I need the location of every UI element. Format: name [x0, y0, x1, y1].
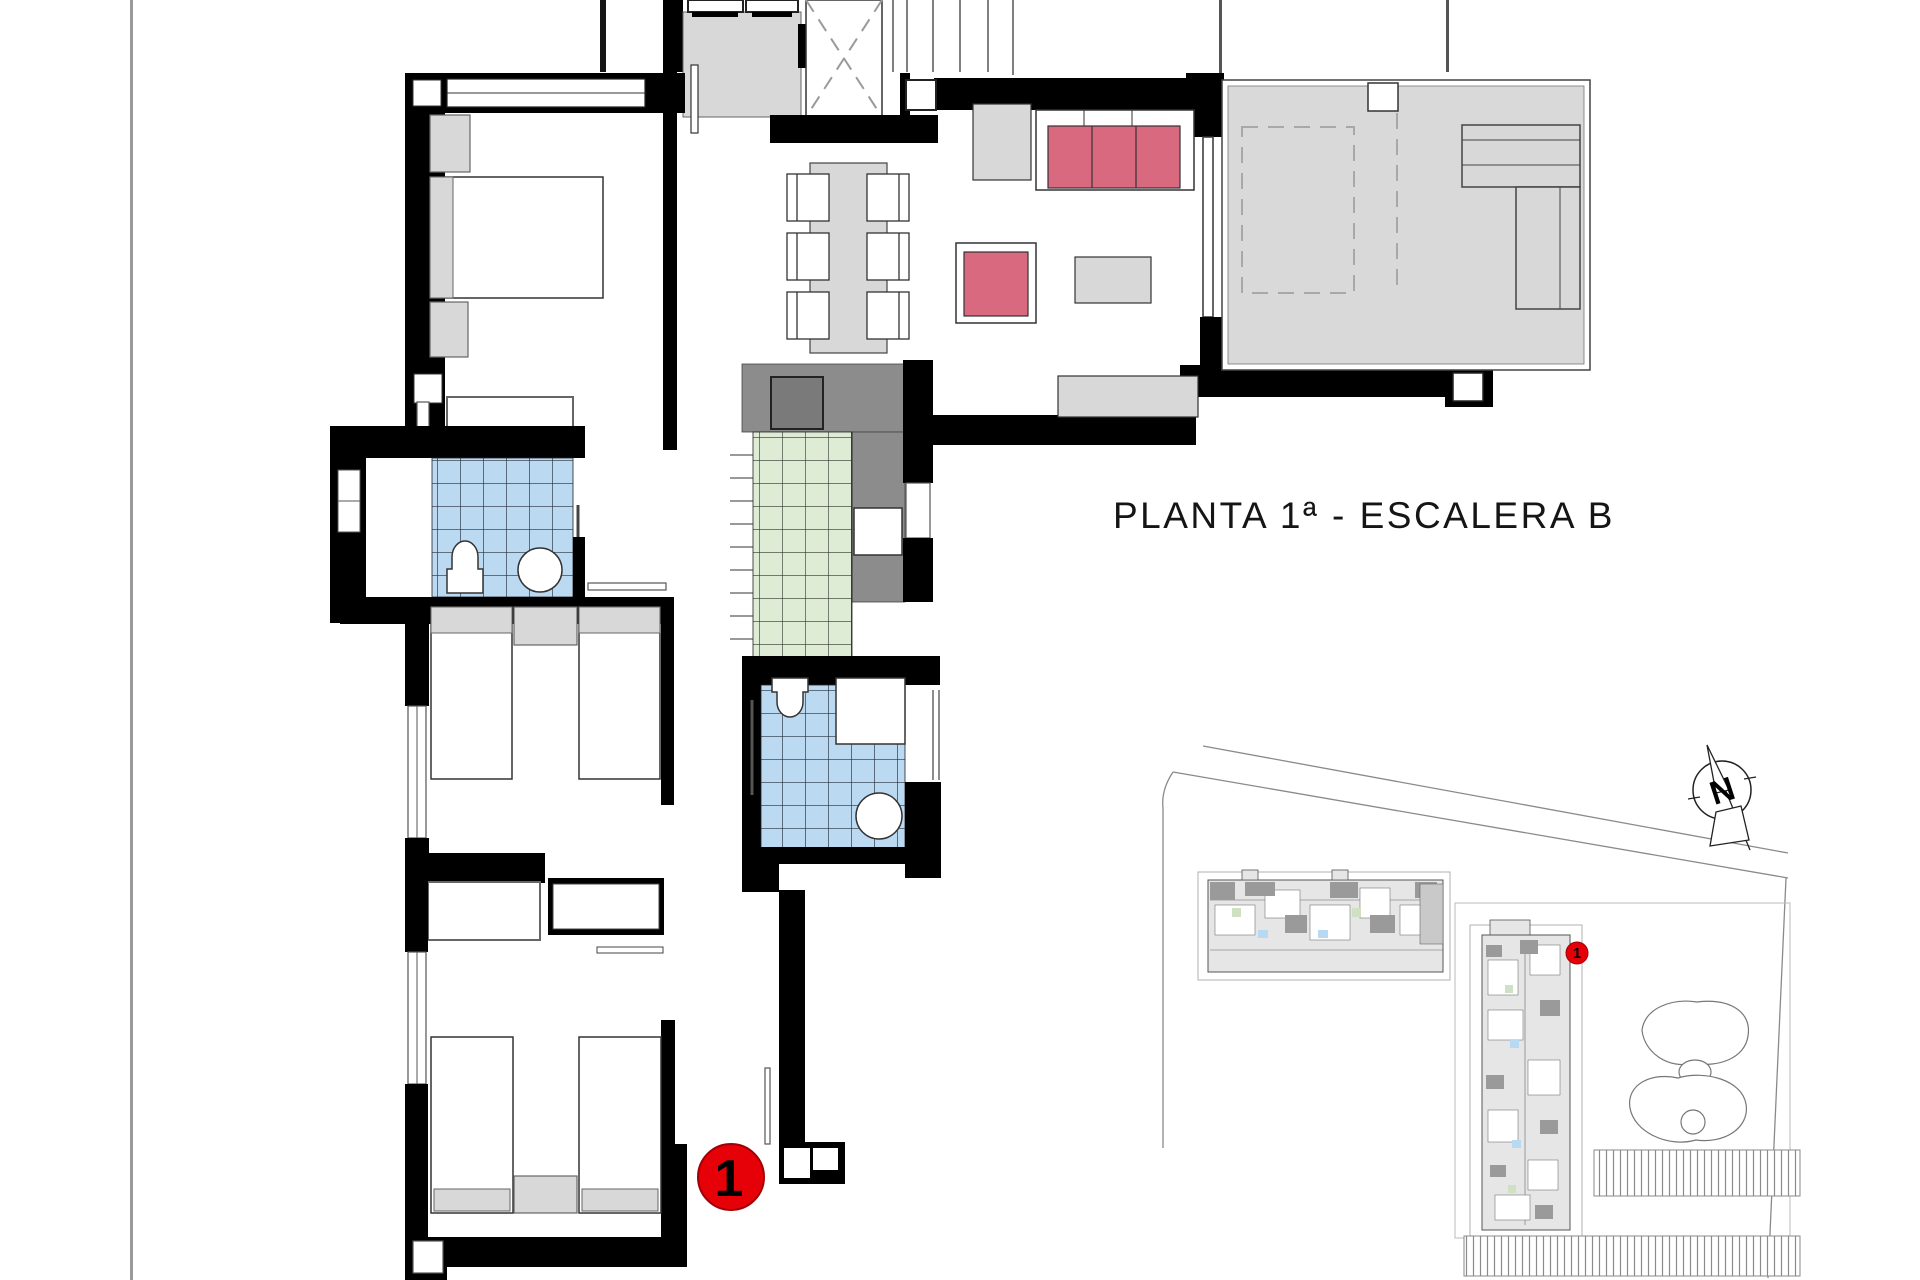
dining-set [787, 163, 909, 353]
wall [905, 782, 941, 878]
terrace-notch [1368, 83, 1398, 111]
hatched-deck [1464, 1236, 1800, 1276]
entrance-door-opening [813, 1148, 838, 1170]
kitchen-tiled-floor [753, 432, 852, 658]
living-bottom-wall [930, 415, 1196, 445]
wall [661, 1020, 675, 1144]
floor-plan-page: 1 PLANTA 1ª - ESCALERA B [0, 0, 1920, 1280]
landing-door [746, 0, 798, 12]
shower [836, 678, 905, 744]
bedroom-1 [405, 70, 685, 450]
single-bed [579, 1037, 661, 1213]
site-unit-marker: 1 [1566, 942, 1588, 964]
closet [553, 884, 659, 929]
site-plan: 1 N [1163, 745, 1800, 1278]
kitchen-sink [771, 377, 823, 429]
wall-window [1453, 373, 1483, 401]
stair-landing [683, 12, 801, 117]
plan-title: PLANTA 1ª - ESCALERA B [1113, 495, 1615, 536]
stairwell-block [663, 0, 1013, 143]
unit-marker-label: 1 [715, 1150, 744, 1208]
shelf [597, 947, 663, 953]
wall-stub [573, 537, 585, 597]
nightstand [430, 302, 468, 357]
washbasin [518, 548, 562, 592]
coffee-table [1075, 257, 1151, 303]
sideboard [973, 104, 1031, 180]
appliance [854, 508, 902, 555]
balcony-divider-line [600, 0, 606, 72]
bottom-wall [405, 1237, 686, 1267]
living-top-wall [934, 78, 1186, 110]
pool-island [1681, 1110, 1705, 1134]
corridor-wall [779, 890, 805, 1150]
wardrobe [428, 882, 540, 940]
bathroom-2 [742, 656, 941, 878]
hatched-deck [1594, 1150, 1800, 1196]
door-leaf [765, 1068, 770, 1144]
door-threshold [752, 12, 792, 17]
page-border-left [130, 0, 133, 1280]
wall-niche [906, 80, 936, 110]
wall [742, 862, 779, 892]
entry-door-leaf [691, 65, 698, 133]
entrance-door-opening [784, 1148, 810, 1178]
washbasin [856, 793, 902, 839]
nightstand [430, 115, 470, 172]
hall-wall [770, 115, 938, 143]
site-unit-marker-label: 1 [1573, 945, 1581, 962]
bathroom1-top-wall [330, 426, 585, 458]
kitchen-right-wall [903, 538, 933, 602]
window [413, 1241, 443, 1273]
bedroom-2 [405, 600, 674, 888]
wall [405, 880, 428, 952]
building-b [1482, 920, 1570, 1230]
terrace [1222, 80, 1590, 370]
sideboard-low [1058, 376, 1198, 417]
single-bed [431, 607, 512, 779]
stair-treads [893, 0, 1013, 75]
door-opening [414, 374, 442, 403]
stairwell-wall [663, 0, 683, 72]
tile-edge-lines [730, 455, 753, 639]
pool-area [1630, 1001, 1749, 1142]
bedroom-3 [405, 878, 687, 1280]
wall [405, 600, 429, 706]
kitchen [730, 360, 933, 658]
north-letter: N [1705, 769, 1739, 812]
single-bed [579, 607, 660, 779]
terrace-boundary-line-left [1219, 0, 1222, 76]
terrace-glazing [1203, 137, 1213, 317]
kitchen-right-wall [903, 360, 933, 483]
single-bed [431, 1037, 513, 1213]
pool-blob [1642, 1001, 1748, 1064]
armchair [956, 243, 1036, 323]
window [906, 483, 930, 538]
building-a [1208, 870, 1443, 972]
terrace-boundary-line-right [1446, 0, 1449, 72]
sofa-three-seat [1036, 110, 1194, 190]
floor-plan-drawing: 1 PLANTA 1ª - ESCALERA B [0, 0, 1920, 1280]
window [413, 80, 441, 106]
landing-door [688, 0, 743, 12]
unit-marker: 1 [698, 1144, 764, 1210]
nightstand [514, 1176, 577, 1213]
wall [1200, 317, 1224, 365]
wall [661, 600, 674, 805]
bathroom-1 [330, 426, 674, 624]
north-compass-icon: N [1688, 745, 1756, 850]
bedroom1-right-wall [663, 70, 677, 450]
double-bed [430, 177, 603, 298]
nightstand [514, 607, 577, 645]
shelf [588, 583, 666, 590]
entrance-corridor [742, 862, 845, 1184]
bathroom2-bottom-wall [742, 847, 914, 864]
door-threshold [692, 12, 738, 17]
divider-wall [405, 853, 545, 883]
